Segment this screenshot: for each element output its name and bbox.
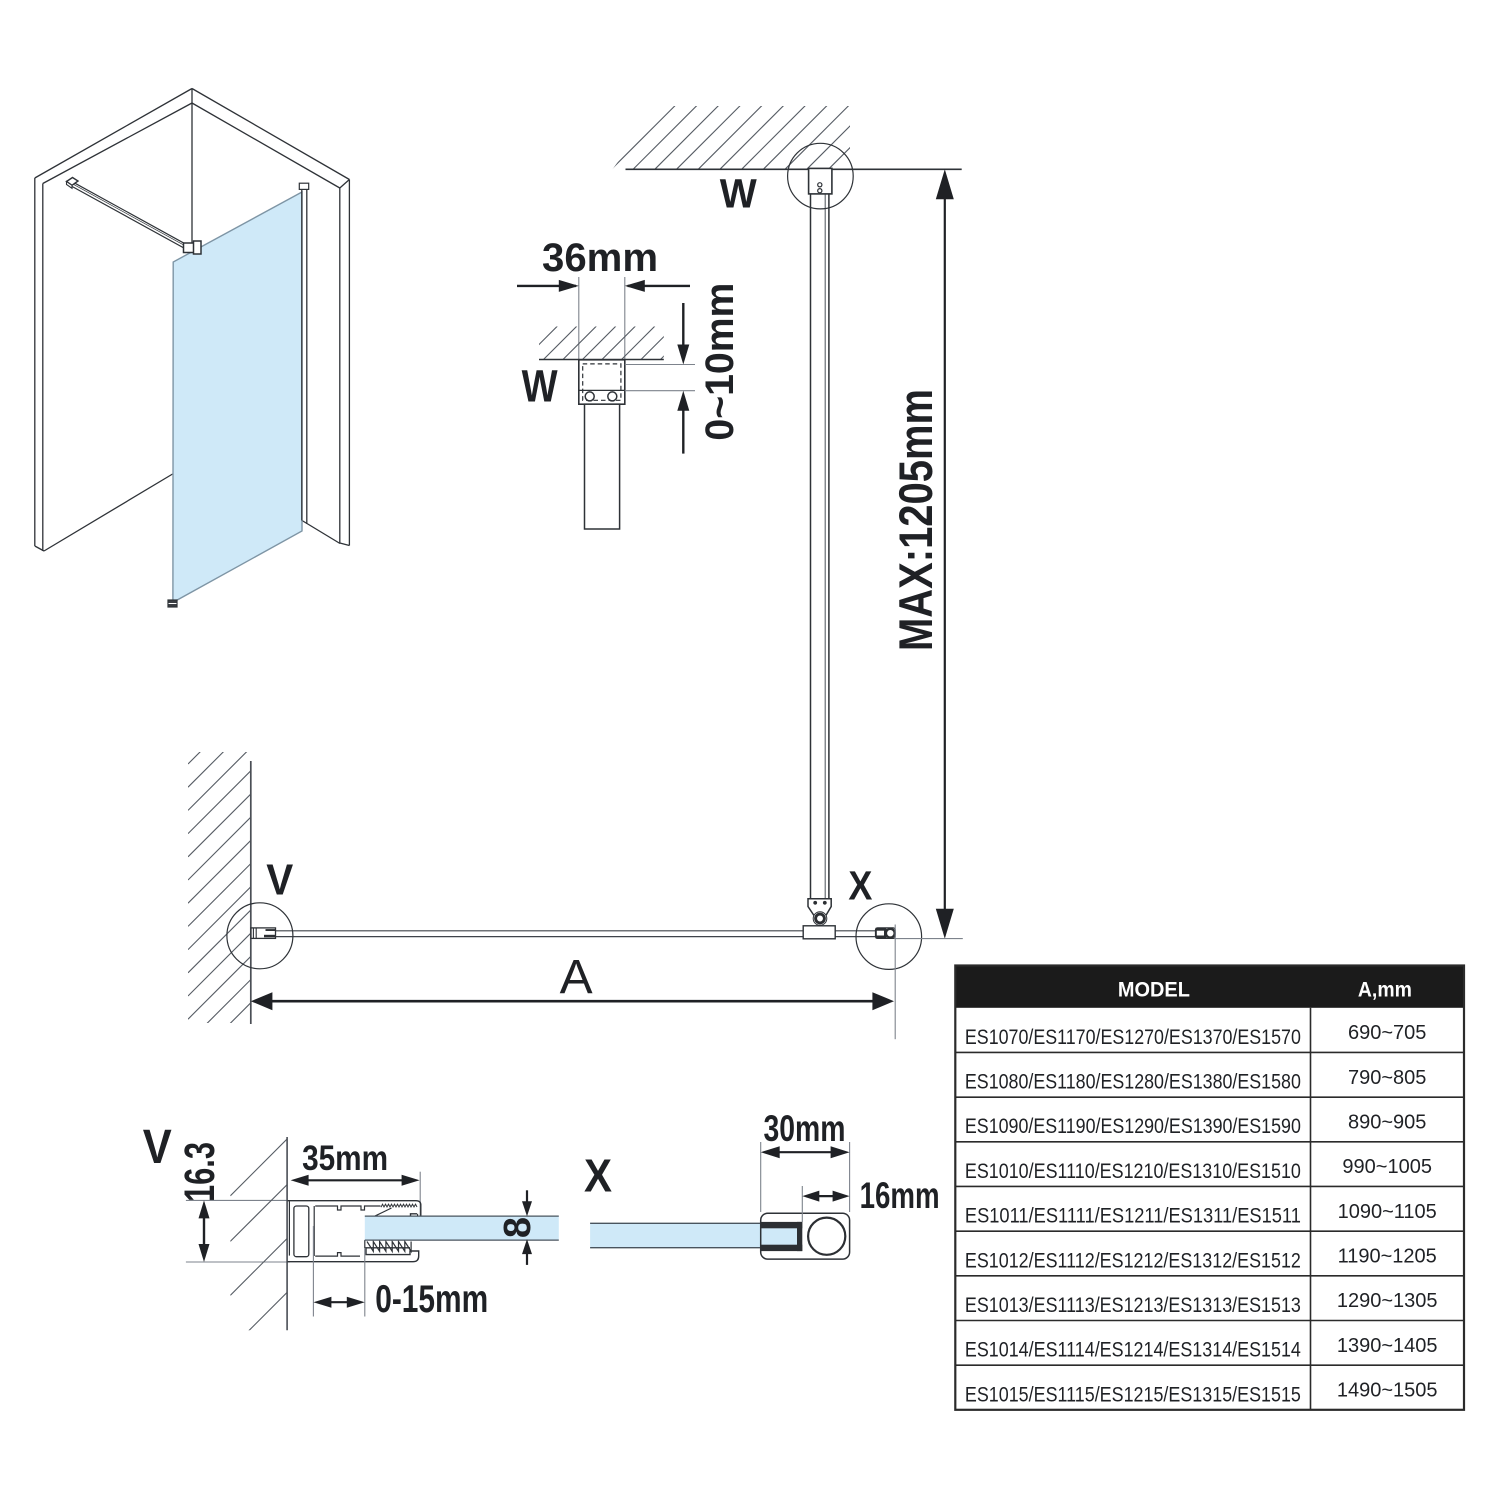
svg-text:V: V bbox=[266, 856, 294, 905]
svg-text:ES1010/ES1110/ES1210/ES1310/ES: ES1010/ES1110/ES1210/ES1310/ES1510 bbox=[965, 1159, 1301, 1183]
svg-text:30mm: 30mm bbox=[764, 1108, 846, 1149]
svg-text:1390~1405: 1390~1405 bbox=[1337, 1335, 1438, 1357]
svg-text:W: W bbox=[522, 361, 558, 412]
svg-text:16.3: 16.3 bbox=[176, 1142, 224, 1202]
svg-text:A: A bbox=[560, 951, 593, 1004]
svg-text:ES1080/ES1180/ES1280/ES1380/ES: ES1080/ES1180/ES1280/ES1380/ES1580 bbox=[965, 1070, 1301, 1094]
svg-text:X: X bbox=[848, 863, 872, 909]
svg-text:MODEL: MODEL bbox=[1118, 978, 1190, 1001]
svg-text:990~1005: 990~1005 bbox=[1342, 1156, 1432, 1178]
svg-text:ES1013/ES1113/ES1213/ES1313/ES: ES1013/ES1113/ES1213/ES1313/ES1513 bbox=[965, 1293, 1301, 1317]
svg-text:ES1012/ES1112/ES1212/ES1312/ES: ES1012/ES1112/ES1212/ES1312/ES1512 bbox=[965, 1248, 1301, 1272]
svg-text:16mm: 16mm bbox=[860, 1175, 940, 1216]
svg-text:W: W bbox=[720, 171, 757, 217]
svg-text:X: X bbox=[584, 1150, 612, 1202]
svg-text:0-15mm: 0-15mm bbox=[375, 1278, 488, 1321]
svg-text:MAX:1205mm: MAX:1205mm bbox=[889, 389, 942, 651]
svg-text:35mm: 35mm bbox=[302, 1139, 388, 1178]
svg-text:1490~1505: 1490~1505 bbox=[1337, 1379, 1438, 1401]
svg-text:V: V bbox=[143, 1121, 172, 1174]
svg-text:1290~1305: 1290~1305 bbox=[1337, 1290, 1438, 1312]
svg-text:690~705: 690~705 bbox=[1348, 1022, 1426, 1044]
svg-text:ES1015/ES1115/ES1215/ES1315/ES: ES1015/ES1115/ES1215/ES1315/ES1515 bbox=[965, 1382, 1301, 1406]
svg-text:A,mm: A,mm bbox=[1358, 978, 1412, 1001]
svg-text:790~805: 790~805 bbox=[1348, 1067, 1426, 1089]
svg-text:ES1070/ES1170/ES1270/ES1370/ES: ES1070/ES1170/ES1270/ES1370/ES1570 bbox=[965, 1025, 1301, 1049]
svg-text:8: 8 bbox=[497, 1217, 539, 1238]
svg-text:ES1011/ES1111/ES1211/ES1311/ES: ES1011/ES1111/ES1211/ES1311/ES1511 bbox=[965, 1204, 1301, 1228]
svg-text:36mm: 36mm bbox=[542, 236, 658, 280]
svg-text:ES1014/ES1114/ES1214/ES1314/ES: ES1014/ES1114/ES1214/ES1314/ES1514 bbox=[965, 1338, 1301, 1362]
svg-text:1190~1205: 1190~1205 bbox=[1338, 1245, 1437, 1267]
svg-text:0~10mm: 0~10mm bbox=[698, 283, 742, 441]
svg-text:1090~1105: 1090~1105 bbox=[1338, 1201, 1437, 1223]
svg-text:890~905: 890~905 bbox=[1348, 1111, 1426, 1133]
svg-text:ES1090/ES1190/ES1290/ES1390/ES: ES1090/ES1190/ES1290/ES1390/ES1590 bbox=[965, 1114, 1301, 1138]
